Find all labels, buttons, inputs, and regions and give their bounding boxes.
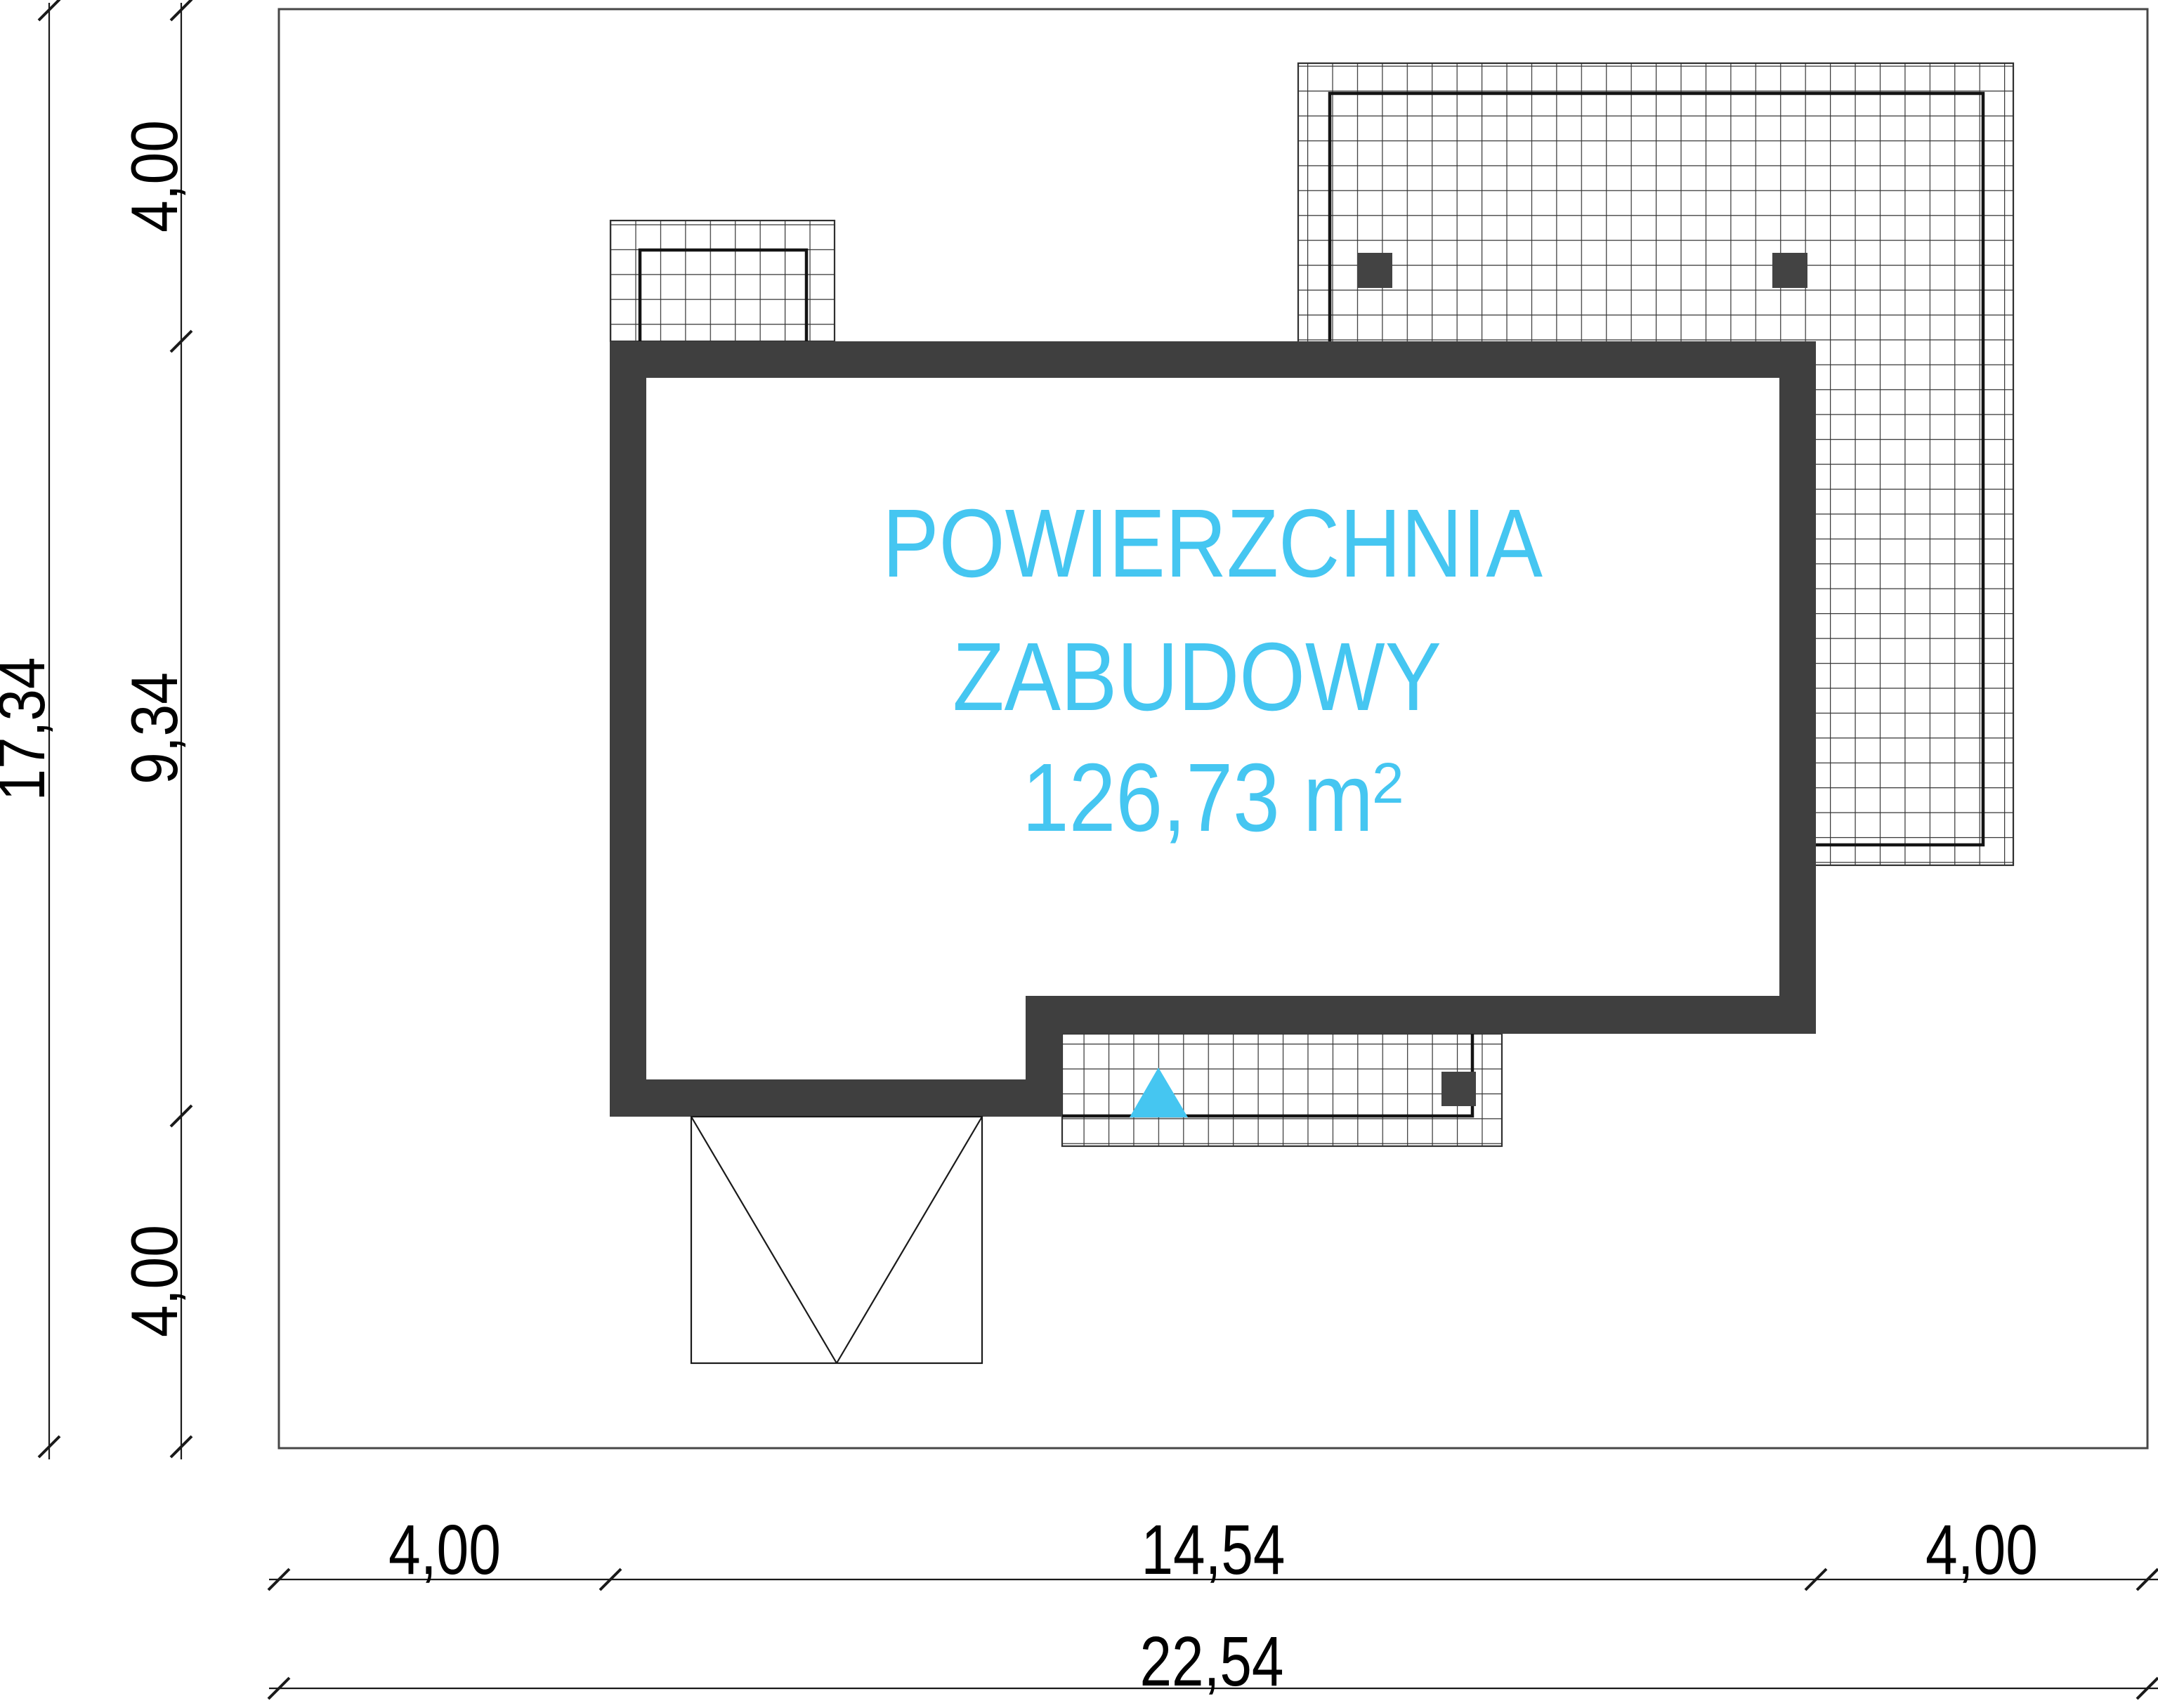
svg-text:17,34: 17,34 [0,657,58,801]
svg-text:126,73 m: 126,73 m [1022,744,1373,852]
svg-text:9,34: 9,34 [117,672,191,784]
svg-text:22,54: 22,54 [1140,1622,1284,1701]
svg-text:2: 2 [1372,751,1404,815]
svg-text:4,00: 4,00 [1925,1511,2038,1589]
svg-text:ZABUDOWY: ZABUDOWY [953,623,1441,731]
svg-text:14,54: 14,54 [1142,1511,1286,1589]
svg-text:4,00: 4,00 [117,120,191,232]
svg-text:4,00: 4,00 [388,1511,501,1589]
svg-text:POWIERZCHNIA: POWIERZCHNIA [882,490,1543,598]
svg-text:4,00: 4,00 [117,1225,191,1337]
